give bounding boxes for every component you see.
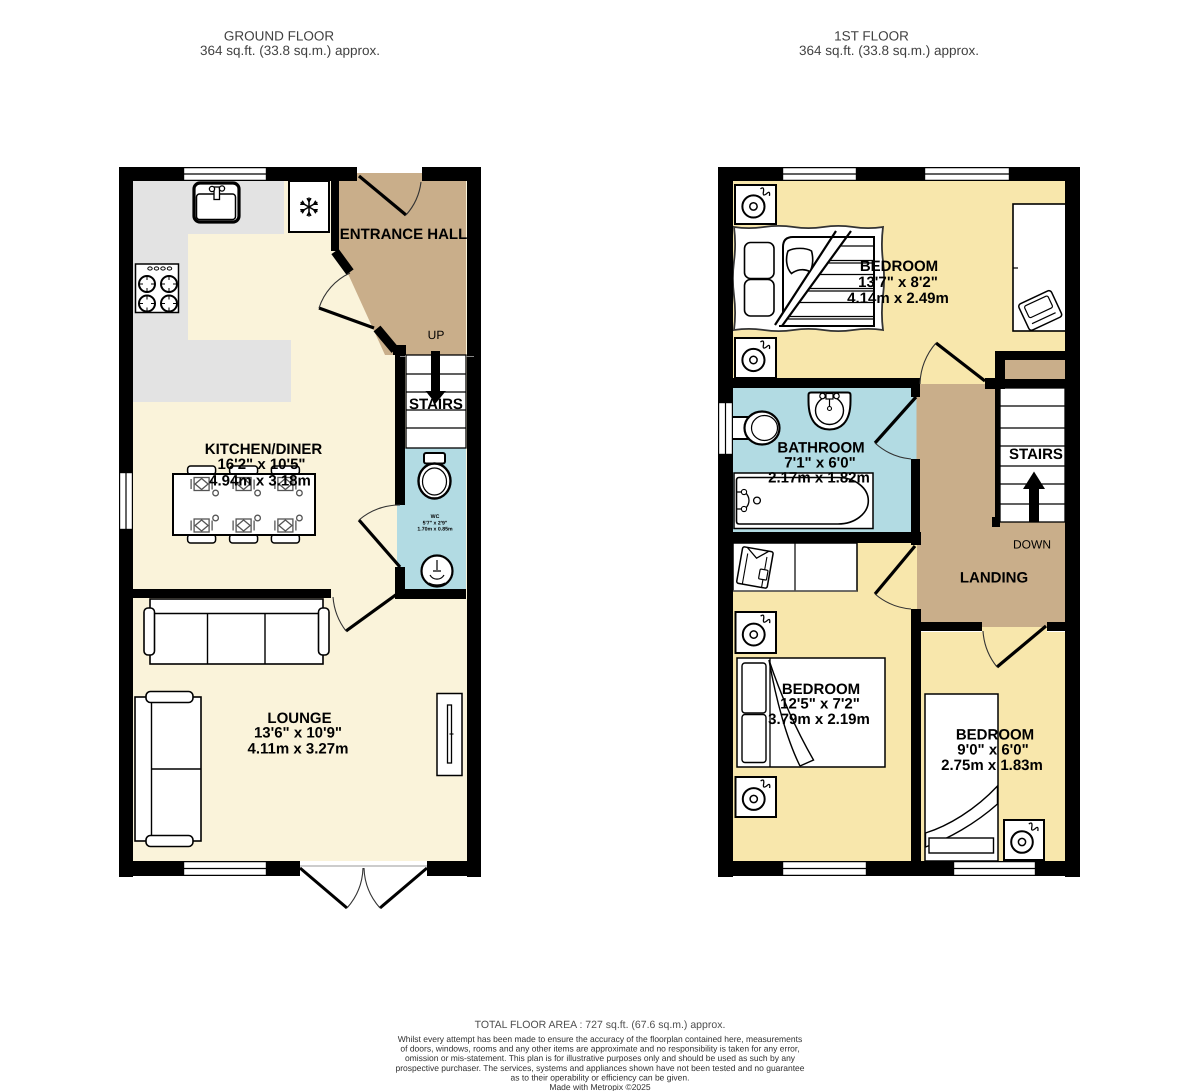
- svg-text:STAIRS: STAIRS: [1009, 446, 1063, 463]
- svg-text:UP: UP: [428, 328, 445, 342]
- svg-text:12'5" x 7'2": 12'5" x 7'2": [780, 696, 860, 713]
- svg-text:TOTAL FLOOR AREA : 727 sq.ft.: TOTAL FLOOR AREA : 727 sq.ft. (67.6 sq.m…: [475, 1019, 726, 1031]
- svg-text:1ST FLOOR: 1ST FLOOR: [834, 29, 909, 44]
- svg-text:BEDROOM: BEDROOM: [860, 258, 938, 275]
- svg-text:364 sq.ft. (33.8 sq.m.) approx: 364 sq.ft. (33.8 sq.m.) approx.: [799, 43, 979, 58]
- svg-text:2.75m x 1.83m: 2.75m x 1.83m: [941, 757, 1043, 774]
- svg-text:4.94m x 3.18m: 4.94m x 3.18m: [209, 472, 311, 489]
- svg-text:of doors, windows, rooms and a: of doors, windows, rooms and any other i…: [400, 1044, 799, 1054]
- svg-text:DOWN: DOWN: [1013, 538, 1051, 552]
- svg-text:ENTRANCE HALL: ENTRANCE HALL: [340, 226, 468, 243]
- svg-text:364 sq.ft. (33.8 sq.m.) approx: 364 sq.ft. (33.8 sq.m.) approx.: [200, 43, 380, 58]
- svg-text:2.17m x 1.82m: 2.17m x 1.82m: [768, 470, 870, 487]
- svg-text:3.79m x 2.19m: 3.79m x 2.19m: [768, 711, 870, 728]
- svg-text:4.14m x 2.49m: 4.14m x 2.49m: [847, 290, 949, 307]
- svg-text:4.11m x 3.27m: 4.11m x 3.27m: [248, 741, 349, 758]
- svg-text:WC: WC: [431, 514, 440, 520]
- svg-text:16'2" x 10'5": 16'2" x 10'5": [217, 456, 305, 473]
- svg-text:13'6" x 10'9": 13'6" x 10'9": [254, 725, 342, 742]
- svg-text:Whilst every attempt has been: Whilst every attempt has been made to en…: [398, 1034, 802, 1044]
- svg-text:GROUND FLOOR: GROUND FLOOR: [224, 29, 335, 44]
- svg-text:LANDING: LANDING: [960, 570, 1028, 587]
- svg-text:omission or mis-statement. Thi: omission or mis-statement. This plan is …: [405, 1053, 796, 1063]
- svg-text:13'7" x 8'2": 13'7" x 8'2": [858, 274, 938, 291]
- svg-text:prospective purchaser. The ser: prospective purchaser. The services, sys…: [395, 1063, 804, 1073]
- svg-text:Made with Metropix ©2025: Made with Metropix ©2025: [549, 1082, 651, 1091]
- svg-text:STAIRS: STAIRS: [409, 396, 463, 413]
- svg-text:as to their operability or eff: as to their operability or efficiency ca…: [511, 1072, 690, 1082]
- svg-text:5'7" x 2'9": 5'7" x 2'9": [423, 520, 448, 526]
- svg-text:9'0" x 6'0": 9'0" x 6'0": [957, 742, 1028, 759]
- svg-text:1.70m x 0.85m: 1.70m x 0.85m: [417, 527, 453, 533]
